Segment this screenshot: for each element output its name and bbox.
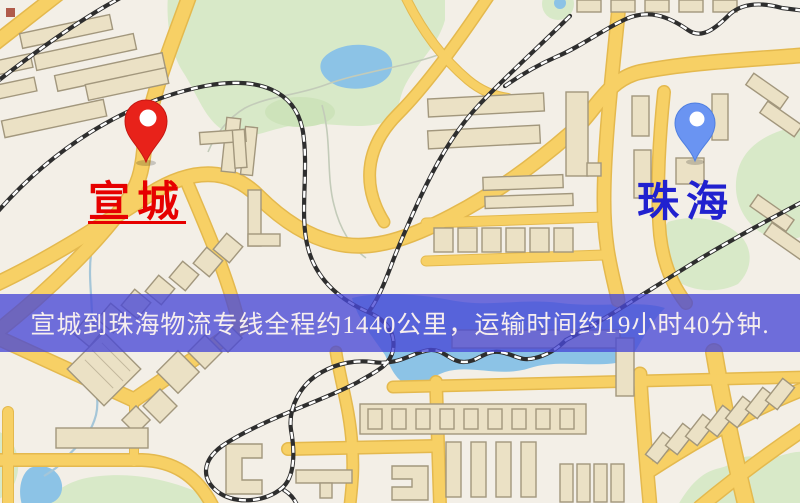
destination-city-label: 珠海: [637, 182, 735, 224]
route-info-text: 宣城到珠海物流专线全程约1440公里，运输时间约19小时40分钟.: [30, 305, 769, 341]
origin-city-label: 宣城: [88, 182, 186, 224]
small-red-building: [6, 8, 15, 17]
base-map: [0, 0, 800, 503]
route-info-banner: 宣城到珠海物流专线全程约1440公里，运输时间约19小时40分钟.: [0, 294, 800, 352]
map-canvas: 宣城 珠海 宣城到珠海物流专线全程约1440公里，运输时间约19小时40分钟.: [0, 0, 800, 503]
